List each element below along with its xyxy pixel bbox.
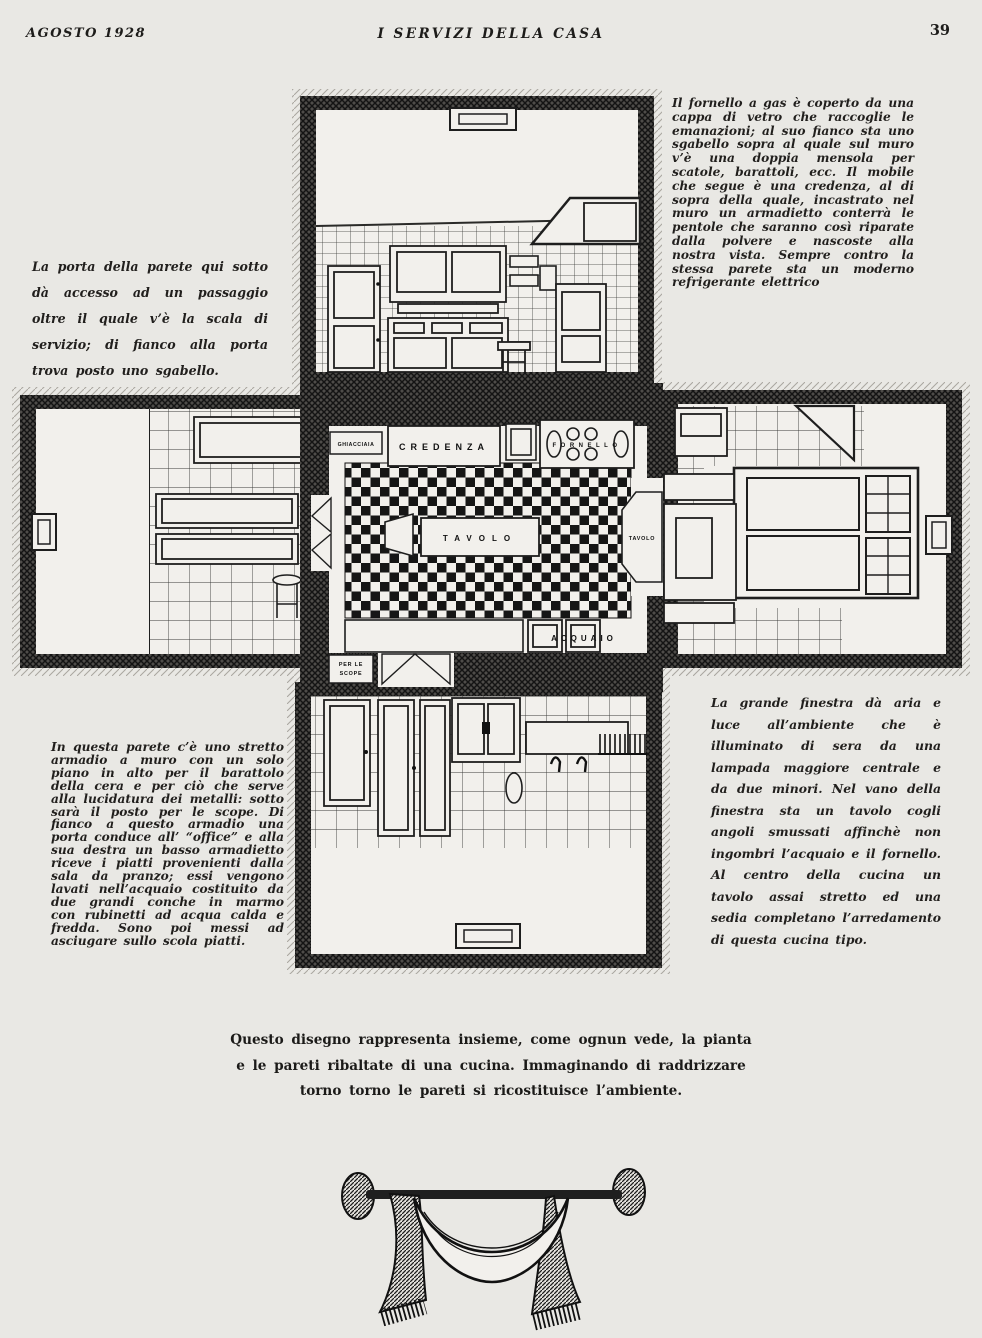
refrigerator-cabinet — [328, 266, 380, 372]
vent-window-bottom — [456, 924, 520, 948]
stove-plan: FORNELLO — [540, 420, 634, 468]
office-door — [378, 700, 450, 836]
chair-plan — [385, 514, 413, 556]
drawing-caption: Questo disegno rappresenta insieme, come… — [0, 1028, 982, 1105]
curtain-rod — [342, 1169, 645, 1219]
credenza-base-cabinet — [388, 318, 508, 372]
caption-line-3: torno torno le pareti si ricostituisce l… — [0, 1079, 982, 1105]
kitchen-plan-drawing: GHIACCIAIA CREDENZA FORNELLO — [0, 88, 982, 988]
magazine-page: { "header": { "left": "AGOSTO 1928", "ce… — [0, 0, 982, 1338]
credenza-plan: CREDENZA — [388, 426, 500, 466]
sink-label: ACQUAIO — [551, 634, 617, 643]
door-opening-bottom — [378, 653, 454, 687]
table-label: TAVOLO — [443, 534, 517, 543]
credenza-label: CREDENZA — [399, 442, 489, 452]
page-title: I SERVIZI DELLA CASA — [0, 26, 982, 42]
wall-elevation-top — [300, 96, 654, 384]
dish-cabinet — [452, 698, 520, 762]
icebox-label: GHIACCIAIA — [338, 442, 375, 448]
door-opening-left — [311, 495, 331, 571]
wall-box — [540, 266, 556, 290]
page-number: 39 — [930, 22, 950, 39]
icebox-plan: GHIACCIAIA — [330, 432, 382, 454]
broom-label-2: SCOPE — [340, 671, 363, 677]
stool-plan — [506, 424, 536, 460]
caption-line-1: Questo disegno rappresenta insieme, come… — [0, 1028, 982, 1054]
corner-box — [675, 408, 727, 456]
bay-table-side — [664, 474, 736, 623]
door-handle — [32, 514, 56, 550]
drapery-illustration — [326, 1142, 662, 1337]
broom-label-1: PER LE — [339, 662, 363, 668]
large-window — [734, 468, 918, 598]
caption-line-2: e le pareti ribaltate di una cucina. Imm… — [0, 1054, 982, 1080]
fringe-left — [382, 1306, 425, 1318]
table-plan: TAVOLO — [421, 518, 539, 556]
floor-plan: GHIACCIAIA CREDENZA FORNELLO — [300, 383, 663, 692]
gas-stove — [556, 284, 606, 372]
bench-plan — [345, 620, 523, 652]
vent-window — [450, 108, 516, 130]
wall-elevation-right — [662, 390, 962, 668]
broom-cupboard — [324, 700, 370, 806]
stove-label: FORNELLO — [553, 443, 622, 449]
wall-fixture — [506, 773, 522, 803]
bay-table-label: TAVOLO — [629, 536, 655, 542]
broom-box-plan: PER LE SCOPE — [329, 655, 373, 683]
window-handle — [926, 516, 952, 554]
wall-elevation-left — [20, 395, 330, 668]
wall-elevation-bottom — [295, 682, 662, 968]
fringe-right — [534, 1311, 580, 1322]
